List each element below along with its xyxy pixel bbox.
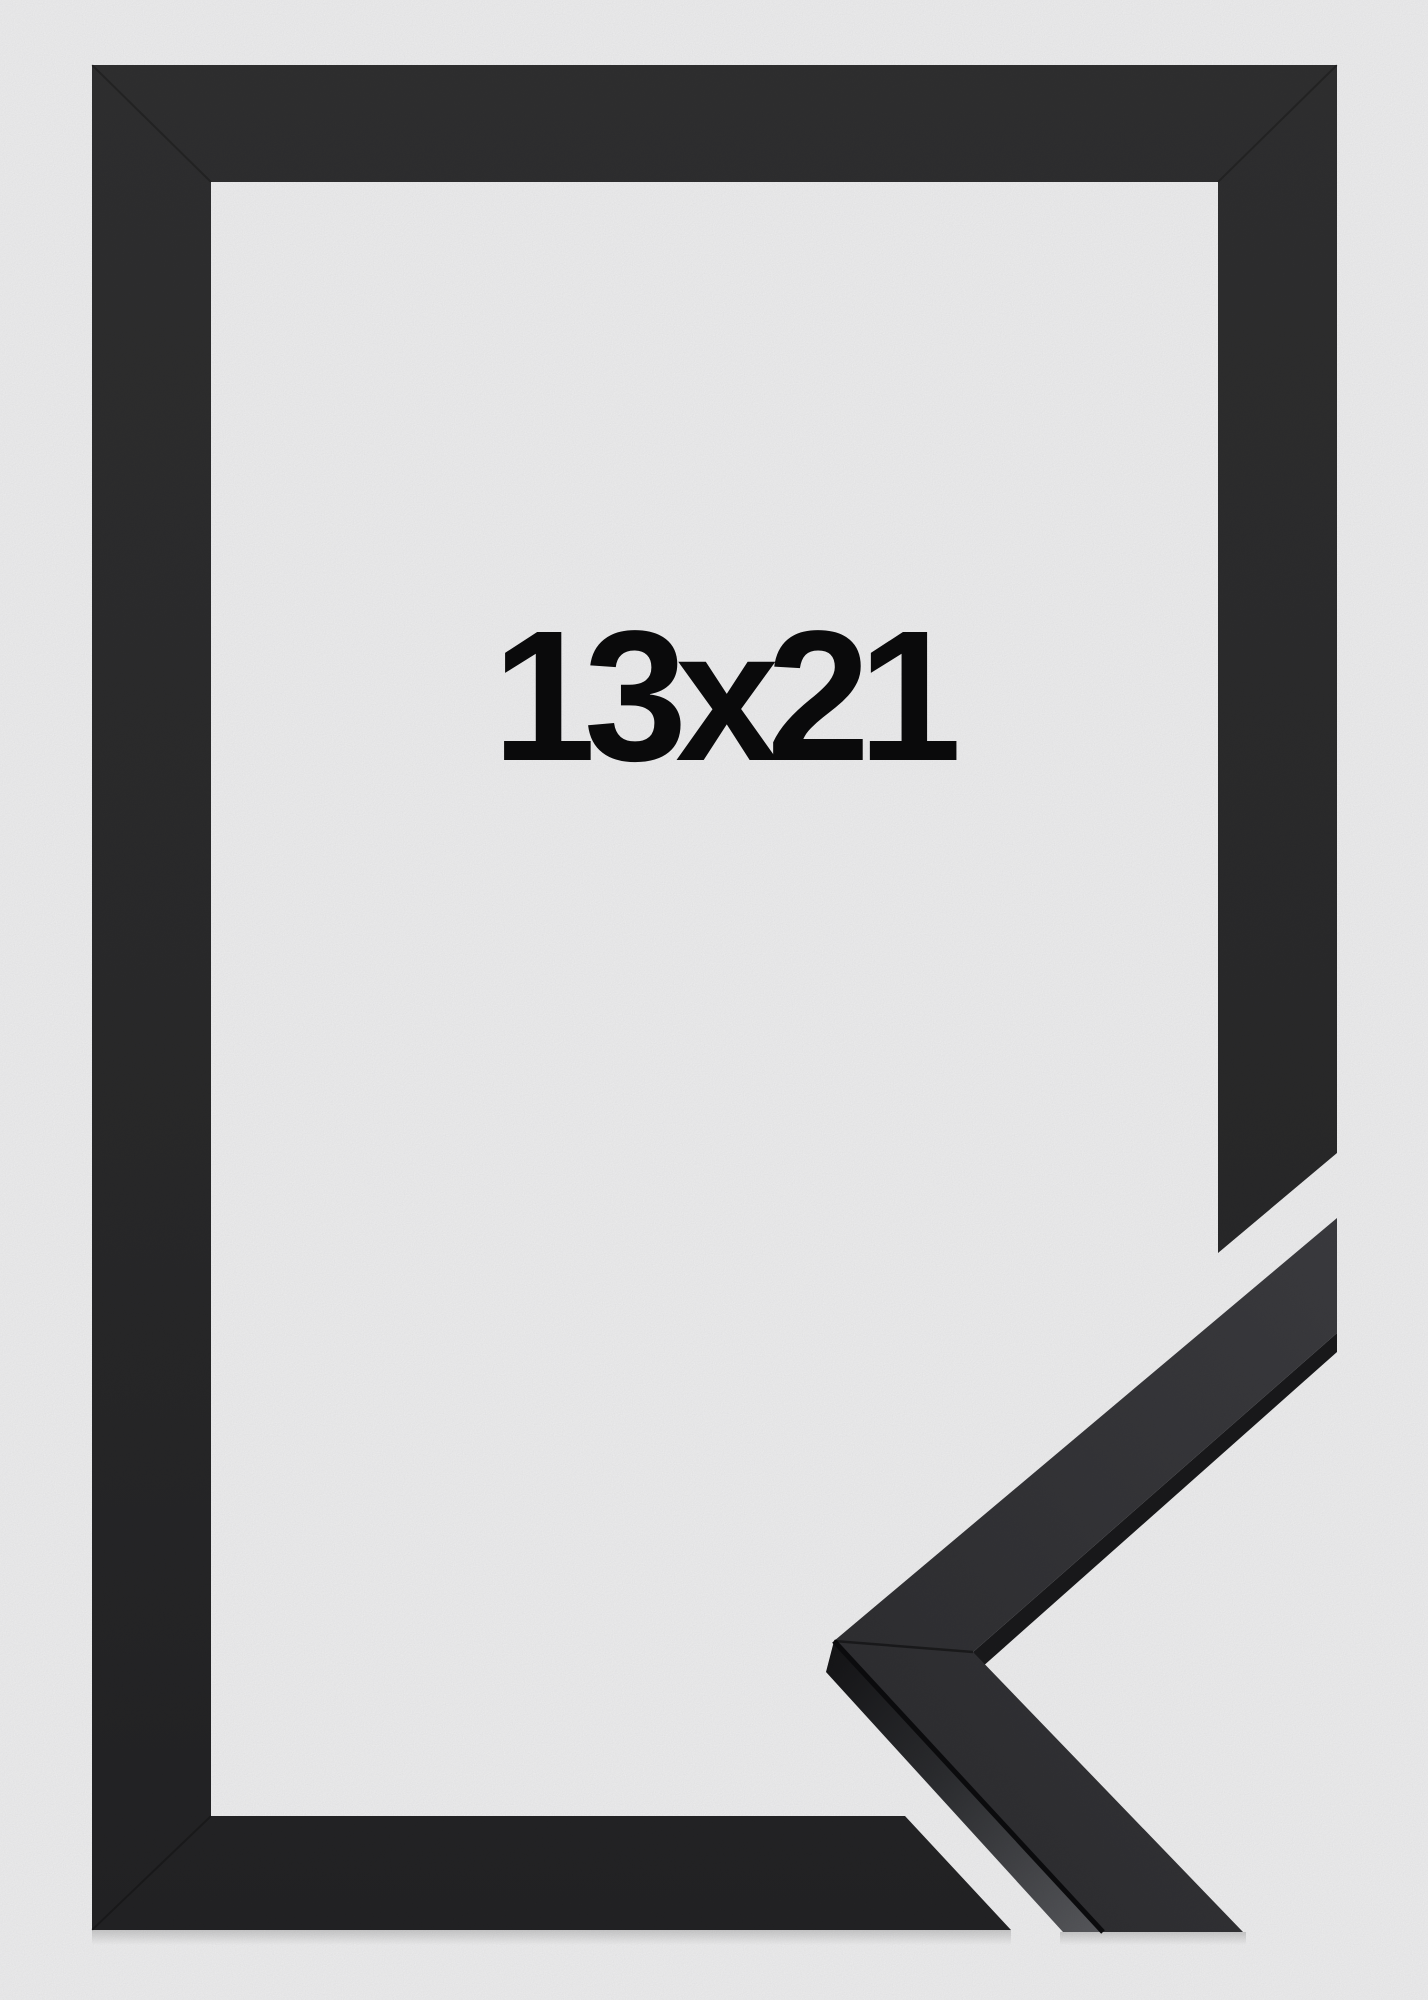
product-photo: 13x21 [0, 0, 1428, 2000]
product-photo-canvas: 13x21 [0, 0, 1428, 2000]
photo-grain [0, 0, 1428, 2000]
